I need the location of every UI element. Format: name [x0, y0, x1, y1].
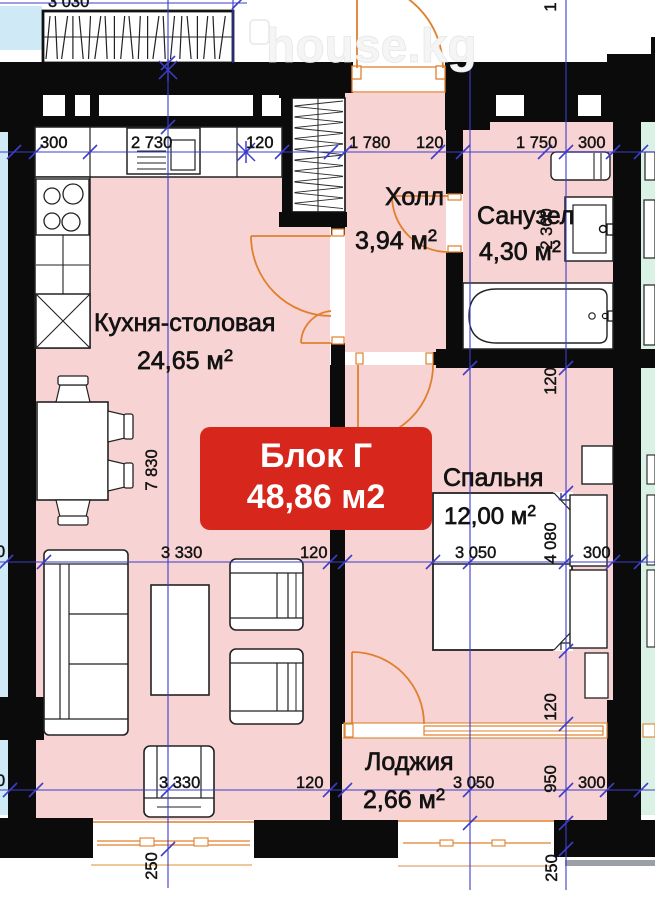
svg-text:120: 120: [416, 134, 444, 152]
svg-text:3 050: 3 050: [455, 544, 496, 562]
svg-text:1 780: 1 780: [349, 134, 390, 152]
svg-text:300: 300: [578, 774, 606, 792]
svg-text:3,94 м2: 3,94 м2: [355, 226, 437, 255]
svg-text:250: 250: [543, 854, 561, 882]
svg-text:300: 300: [578, 134, 606, 152]
svg-text:950: 950: [542, 765, 560, 793]
svg-text:3 330: 3 330: [161, 544, 202, 562]
svg-text:120: 120: [542, 693, 560, 721]
svg-text:120: 120: [246, 134, 274, 152]
svg-text:48,86 м2: 48,86 м2: [247, 478, 386, 516]
svg-text:3 330: 3 330: [159, 774, 200, 792]
svg-text:24,65 м2: 24,65 м2: [137, 346, 233, 375]
svg-text:1 750: 1 750: [516, 134, 557, 152]
svg-text:300: 300: [583, 544, 611, 562]
svg-text:Кухня-столовая: Кухня-столовая: [94, 309, 275, 337]
svg-text:0: 0: [0, 772, 5, 790]
svg-text:Блок Г: Блок Г: [260, 437, 372, 475]
svg-text:120: 120: [296, 774, 324, 792]
svg-text:Спальня: Спальня: [443, 464, 543, 492]
svg-text:0: 0: [0, 543, 5, 561]
svg-text:Лоджия: Лоджия: [365, 748, 454, 776]
svg-text:3 030: 3 030: [48, 0, 89, 11]
svg-text:2 730: 2 730: [131, 134, 172, 152]
svg-text:4,30 м2: 4,30 м2: [479, 237, 561, 266]
svg-text:7 830: 7 830: [143, 449, 161, 490]
svg-text:Холл: Холл: [385, 183, 444, 211]
svg-text:12,00 м2: 12,00 м2: [444, 503, 536, 530]
svg-text:4 080: 4 080: [542, 522, 560, 563]
svg-text:300: 300: [40, 134, 68, 152]
svg-text:1: 1: [542, 2, 560, 11]
svg-text:3 050: 3 050: [453, 774, 494, 792]
svg-text:Санузел: Санузел: [477, 202, 574, 230]
svg-text:250: 250: [143, 852, 161, 880]
svg-text:2,66 м2: 2,66 м2: [363, 785, 445, 814]
svg-text:house.kg: house.kg: [266, 20, 477, 73]
svg-text:120: 120: [300, 544, 328, 562]
svg-text:120: 120: [542, 367, 560, 395]
